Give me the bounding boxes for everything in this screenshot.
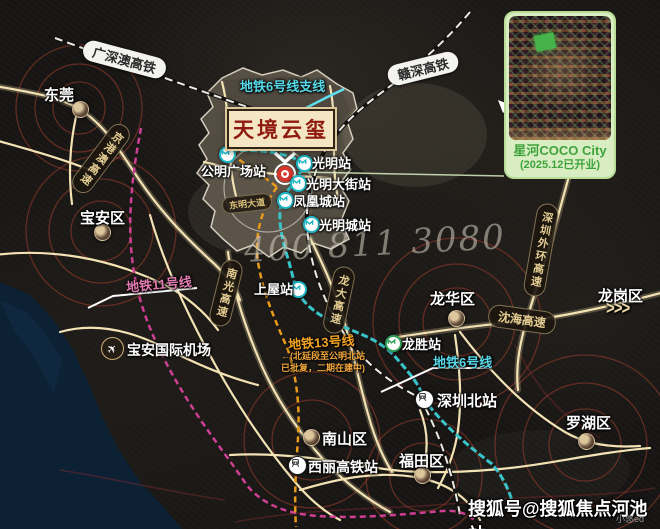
project-title-box: 天境云玺 bbox=[227, 109, 335, 149]
district-label: 东莞 bbox=[44, 84, 74, 105]
station-label: 西丽高铁站 bbox=[308, 457, 378, 477]
metro-station-icon bbox=[296, 155, 313, 172]
metro6-label: 地铁6号线 bbox=[433, 352, 492, 371]
station-label: 凤凰城站 bbox=[293, 191, 345, 210]
watermark-small: 小悠ed bbox=[616, 512, 644, 525]
metro-station-icon-green bbox=[385, 335, 402, 352]
metro-station-icon bbox=[290, 175, 307, 192]
city-dot-icon bbox=[578, 433, 595, 450]
station-label: 龙胜站 bbox=[402, 334, 441, 353]
inset-card: 星河COCO City (2025.12已开业) bbox=[504, 11, 616, 179]
coco-city-photo bbox=[509, 16, 611, 140]
station-label: 深圳北站 bbox=[437, 390, 497, 411]
station-label: 光明城站 bbox=[319, 215, 371, 234]
district-label: 南山区 bbox=[322, 428, 367, 449]
metro6-branch-label: 地铁6号线支线 bbox=[240, 76, 325, 95]
airport-icon: ✈ bbox=[101, 337, 124, 360]
metro13-note-line1: ←(北延段至公明北站 bbox=[281, 350, 365, 362]
metro-station-icon bbox=[277, 192, 294, 209]
train-station-icon bbox=[288, 456, 307, 475]
district-label: 宝安区 bbox=[80, 207, 125, 228]
district-label: 龙华区 bbox=[430, 288, 475, 309]
train-station-icon bbox=[415, 390, 434, 409]
satellite-map: ✈ 宝安国际机场 广深澳高铁 赣深高铁 京港澳高速 南光高速 龙大高速 沈海高速… bbox=[0, 0, 660, 529]
green-screen bbox=[534, 32, 557, 52]
station-label: 光明站 bbox=[312, 153, 351, 172]
station-label: 上屋站 bbox=[254, 279, 293, 298]
district-label: 罗湖区 bbox=[566, 412, 611, 433]
city-dot-icon bbox=[448, 310, 465, 327]
longgang-arrows: >>> bbox=[606, 298, 629, 319]
airport-label: 宝安国际机场 bbox=[127, 340, 211, 360]
station-label: 公明广场站 bbox=[201, 161, 266, 180]
district-label: 福田区 bbox=[399, 450, 444, 471]
inset-title: 星河COCO City bbox=[509, 143, 611, 159]
inset-status: (2025.12已开业) bbox=[509, 159, 611, 173]
metro13-note-line2: 已批复，二期在建中) bbox=[281, 362, 365, 374]
city-dot-icon bbox=[303, 429, 320, 446]
city-dot-icon bbox=[72, 101, 89, 118]
